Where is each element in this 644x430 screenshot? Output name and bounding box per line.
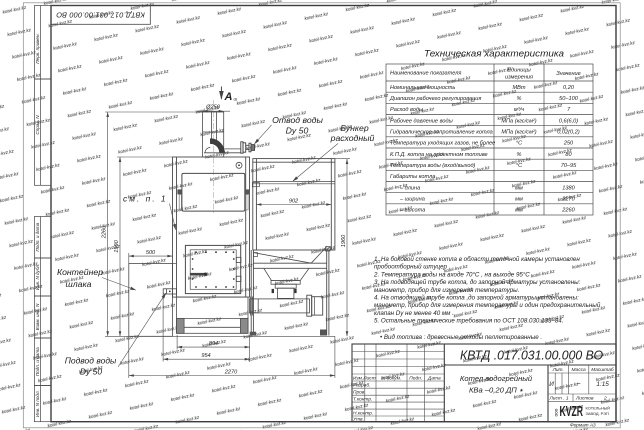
svg-text:Лист . 1: Лист . 1 xyxy=(549,396,569,402)
svg-text:°С: °С xyxy=(516,163,523,169)
svg-text:–: – xyxy=(576,380,581,387)
svg-text:Номинальная мощность: Номинальная мощность xyxy=(390,85,455,91)
svg-text:3. На подводящей трубе котла,: 3. На подводящей трубе котла, до запорно… xyxy=(374,279,581,286)
svg-text:1380: 1380 xyxy=(562,185,575,191)
svg-text:2. Температура воды на входе: 2. Температура воды на входе 70°С , на в… xyxy=(373,271,533,278)
svg-text:Формат А3: Формат А3 xyxy=(570,422,596,427)
svg-text:Гидравлическое сопротивление к: Гидравлическое сопротивление котла xyxy=(390,129,493,135)
svg-text:5. Остальные технические треб: 5. Остальные технические требования по О… xyxy=(374,318,563,325)
svg-text:1:15: 1:15 xyxy=(596,381,609,388)
svg-text:клапан Dу не менее 40 мм .: клапан Dу не менее 40 мм . xyxy=(374,310,454,317)
svg-text:70–95: 70–95 xyxy=(561,163,577,169)
svg-text:мм: мм xyxy=(515,196,523,202)
svg-text:%: % xyxy=(517,152,522,158)
svg-text:902: 902 xyxy=(289,198,299,204)
svg-text:Габариты котла: Габариты котла xyxy=(390,174,435,180)
svg-text:804: 804 xyxy=(209,341,218,347)
svg-text:Значение: Значение xyxy=(556,71,581,77)
svg-text:шлака: шлака xyxy=(66,279,92,289)
svg-text:500: 500 xyxy=(146,250,156,256)
svg-text:2: 2 xyxy=(603,396,607,402)
svg-text:м³/ч: м³/ч xyxy=(514,107,524,113)
svg-text:Масса: Масса xyxy=(572,367,587,373)
svg-text:Лит.: Лит. xyxy=(552,367,564,373)
svg-text:Подп. и дата: Подп. и дата xyxy=(35,347,40,376)
svg-text:2270: 2270 xyxy=(561,196,575,202)
svg-text:KVZR: KVZR xyxy=(560,403,584,420)
svg-text:манометр, прибор для измерения: манометр, прибор для измерения температу… xyxy=(374,287,519,294)
svg-text:Разраб.: Разраб. xyxy=(353,383,370,389)
svg-text:Техническая характеристика: Техническая характеристика xyxy=(424,48,564,59)
svg-text:КВТД .017.031.00.000 ВО: КВТД .017.031.00.000 ВО xyxy=(460,347,603,362)
svg-text:1960: 1960 xyxy=(341,234,347,247)
svg-text:Температура воды (вход/выход): Температура воды (вход/выход) xyxy=(390,163,476,169)
svg-text:80: 80 xyxy=(565,152,572,158)
svg-text:– длина: – длина xyxy=(399,185,420,191)
svg-text:Т.контр.: Т.контр. xyxy=(353,397,372,403)
svg-text:А: А xyxy=(224,91,233,103)
svg-text:Единицы: Единицы xyxy=(507,68,530,74)
svg-text:Рабочее давление воды: Рабочее давление воды xyxy=(390,118,453,124)
svg-text:1990: 1990 xyxy=(114,239,120,252)
svg-text:манометр, прибор для измерения: манометр, прибор для измерения температу… xyxy=(374,302,601,309)
svg-text:см. п. 1: см. п. 1 xyxy=(123,194,168,204)
svg-text:Подп.: Подп. xyxy=(409,375,422,381)
svg-text:• Вид топлива : древесные от: • Вид топлива : древесные отходы пеллети… xyxy=(380,334,542,341)
svg-text:2270: 2270 xyxy=(224,369,238,375)
svg-text:Утв.: Утв. xyxy=(353,417,364,423)
svg-text:МПа (кгс/см²): МПа (кгс/см²) xyxy=(501,118,536,124)
svg-text:Котел водогрейный: Котел водогрейный xyxy=(460,374,533,383)
svg-text:Масштаб: Масштаб xyxy=(591,367,614,373)
svg-text:Инв. N подл.: Инв. N подл. xyxy=(35,390,40,417)
svg-text:°С: °С xyxy=(516,141,523,147)
svg-text:250: 250 xyxy=(563,141,574,147)
svg-text:ООО: ООО xyxy=(555,408,559,416)
svg-text:КОТЕЛЬНЫЙ: КОТЕЛЬНЫЙ xyxy=(586,406,611,411)
svg-text:0,02(0,2): 0,02(0,2) xyxy=(557,129,580,135)
svg-text:Dy 50: Dy 50 xyxy=(80,367,102,377)
svg-text:К.П.Д. котла на проектном топл: К.П.Д. котла на проектном топливе xyxy=(390,152,488,158)
svg-text:Взам. инв. N: Взам. инв. N xyxy=(35,303,40,330)
svg-text:Справ. N: Справ. N xyxy=(35,115,40,135)
svg-text:Дата: Дата xyxy=(427,375,441,381)
svg-text:МПа (кгс/см²): МПа (кгс/см²) xyxy=(501,129,536,135)
svg-text:Перв. примен.: Перв. примен. xyxy=(35,33,40,64)
svg-text:Температура уходящих газов, не: Температура уходящих газов, не более xyxy=(390,141,495,147)
svg-text:ЗАВОД. РЭП: ЗАВОД. РЭП xyxy=(586,411,610,416)
svg-text:2260: 2260 xyxy=(102,225,108,239)
svg-text:Подвод воды: Подвод воды xyxy=(65,356,117,366)
svg-text:Контейнер: Контейнер xyxy=(57,267,103,277)
svg-text:0,20: 0,20 xyxy=(563,85,575,91)
svg-text:Расход воды: Расход воды xyxy=(390,107,423,113)
svg-text:Подп. и дата: Подп. и дата xyxy=(35,222,40,251)
svg-text:КВа –0,20 ДП ٭: КВа –0,20 ДП ٭ xyxy=(469,386,524,395)
svg-text:– высота: – высота xyxy=(399,208,425,214)
svg-text:Инв. N дубл.: Инв. N дубл. xyxy=(35,264,40,291)
svg-text:МВт: МВт xyxy=(512,85,525,91)
svg-text:КВТД.017.031.00.000 ВО: КВТД.017.031.00.000 ВО xyxy=(56,10,145,19)
svg-text:Листов: Листов xyxy=(575,396,594,402)
svg-text:измерения: измерения xyxy=(505,75,533,81)
svg-text:мм: мм xyxy=(515,208,523,214)
svg-text:Пров.: Пров. xyxy=(353,390,366,396)
svg-text:Изм.Лист: Изм.Лист xyxy=(353,375,376,381)
svg-text:2260: 2260 xyxy=(561,208,575,214)
svg-text:N докум.: N докум. xyxy=(382,375,401,381)
svg-text:954: 954 xyxy=(201,353,210,359)
svg-text:пробоотборный штуцер .: пробоотборный штуцер . xyxy=(374,264,450,271)
svg-text:Отвод воды: Отвод воды xyxy=(272,115,323,125)
svg-text:мм: мм xyxy=(515,185,523,191)
svg-text:%: % xyxy=(517,96,522,102)
svg-text:– ширина: – ширина xyxy=(399,196,425,202)
svg-text:0,6(6,0): 0,6(6,0) xyxy=(559,118,578,124)
svg-text:ш: ш xyxy=(234,97,238,102)
svg-text:Бункер: Бункер xyxy=(340,123,369,133)
svg-text:1. На боковой стенке котла в: 1. На боковой стенке котла в области топ… xyxy=(374,256,580,263)
svg-text:Н.контр.: Н.контр. xyxy=(353,411,373,417)
svg-text:Dy 50: Dy 50 xyxy=(286,126,309,136)
svg-text:И: И xyxy=(549,381,554,388)
svg-text:4. На отводящей трубе котла ,: 4. На отводящей трубе котла ,до запорной… xyxy=(374,295,579,302)
svg-text:Ø250: Ø250 xyxy=(205,105,221,111)
svg-text:50–100: 50–100 xyxy=(559,96,579,102)
svg-text:расходный: расходный xyxy=(330,133,375,143)
svg-text:Наименование показателя: Наименование показателя xyxy=(390,71,461,77)
svg-text:Диапазон рабочего регулировани: Диапазон рабочего регулирования xyxy=(389,96,481,102)
